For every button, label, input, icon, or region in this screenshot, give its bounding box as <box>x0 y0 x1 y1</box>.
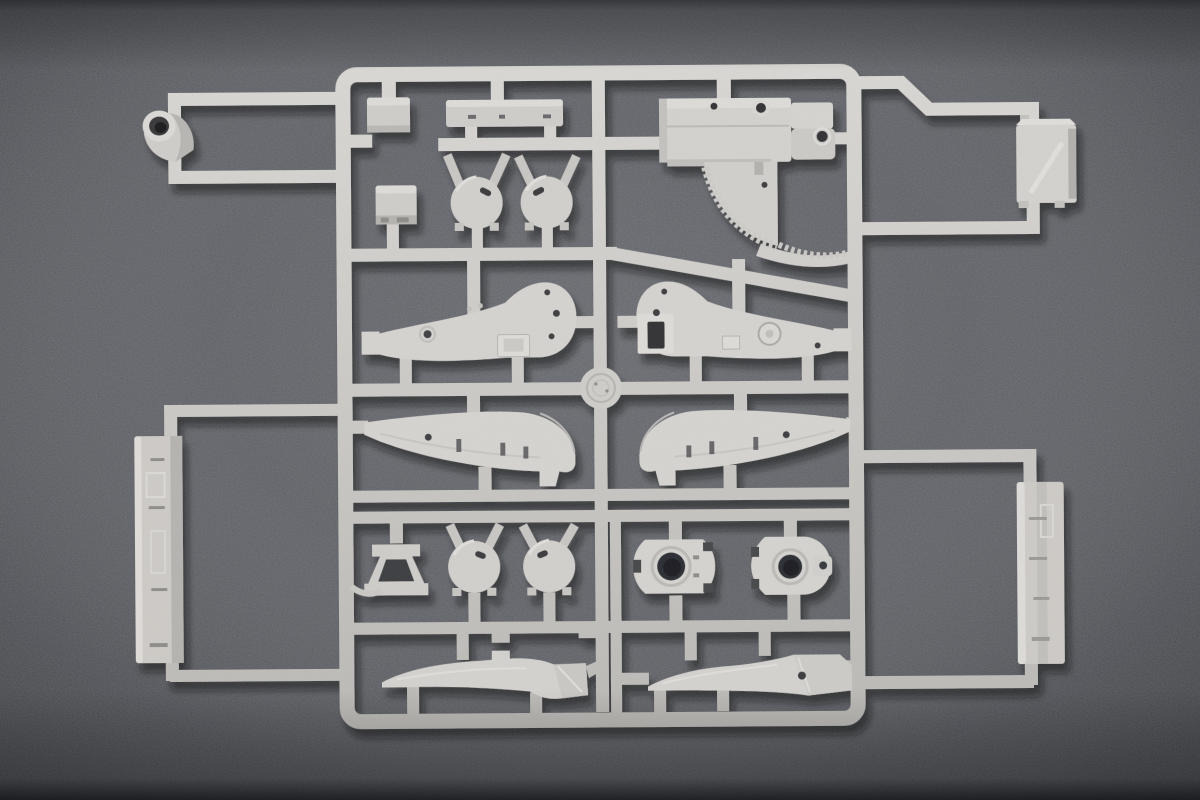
vignette-top <box>0 0 1200 70</box>
photo-grain-overlay <box>0 0 1200 800</box>
photo-stage <box>0 0 1200 800</box>
vignette-bottom <box>0 690 1200 800</box>
